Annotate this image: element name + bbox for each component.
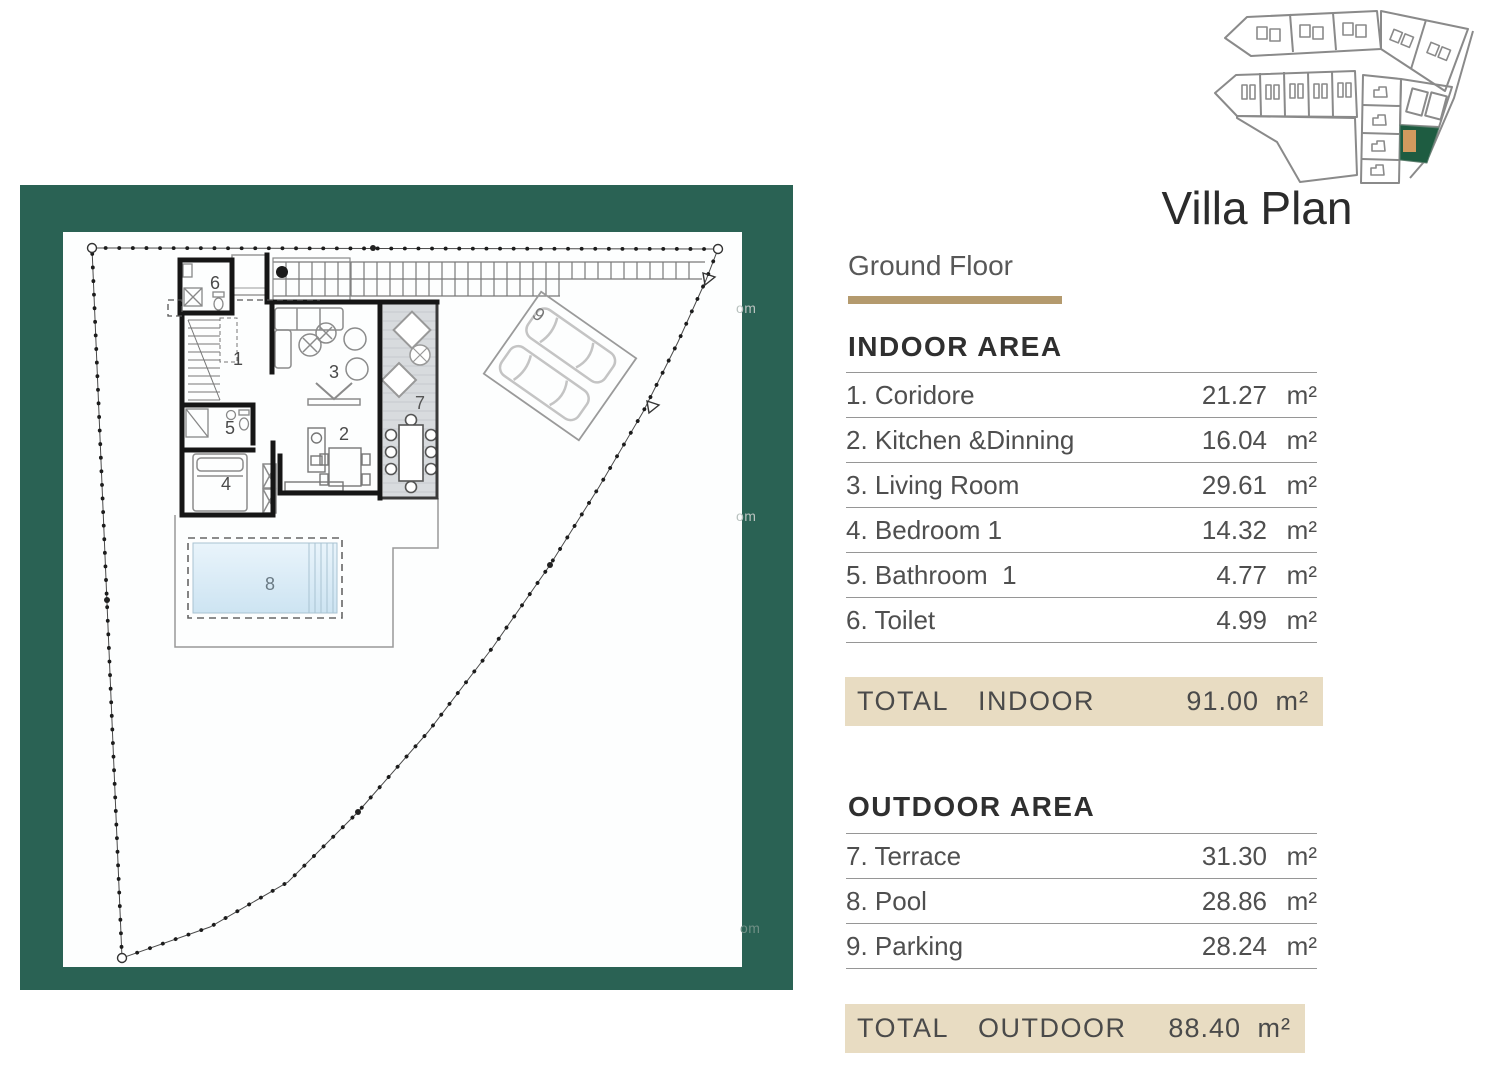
room-area: 29.61 — [1177, 470, 1267, 501]
room-name: 3. Living Room — [846, 470, 1177, 501]
area-unit: m² — [1267, 931, 1317, 962]
room-label-5: 5 — [225, 418, 235, 438]
indoor-table: 1. Coridore 21.27 m² 2. Kitchen &Dinning… — [846, 372, 1317, 643]
area-unit: m² — [1267, 470, 1317, 501]
room-label-3: 3 — [329, 362, 339, 382]
indoor-area-header: INDOOR AREA — [848, 331, 1063, 363]
room-area: 16.04 — [1177, 425, 1267, 456]
watermark-fragment: om — [736, 508, 756, 524]
room-name: 5. Bathroom 1 — [846, 560, 1177, 591]
area-unit: m² — [1267, 605, 1317, 636]
area-unit: m² — [1267, 886, 1317, 917]
table-row: 8. Pool 28.86 m² — [846, 878, 1317, 923]
terrace: 7 — [380, 302, 437, 498]
room-name: 8. Pool — [846, 886, 1177, 917]
bedroom-furniture — [193, 454, 276, 513]
total-indoor-value: 91.00 — [1169, 686, 1259, 717]
room-label-6: 6 — [210, 273, 220, 293]
table-row: 3. Living Room 29.61 m² — [846, 462, 1317, 507]
outdoor-table: 7. Terrace 31.30 m² 8. Pool 28.86 m² 9. … — [846, 833, 1317, 969]
car-icon — [496, 342, 593, 424]
total-indoor-label: TOTAL INDOOR — [857, 686, 1169, 717]
area-unit: m² — [1267, 841, 1317, 872]
floor-plan: 8 9 — [63, 232, 742, 967]
room-name: 1. Coridore — [846, 380, 1177, 411]
room-area: 31.30 — [1177, 841, 1267, 872]
area-unit: m² — [1241, 1013, 1291, 1044]
driveway-strip — [273, 262, 705, 296]
room-label-7: 7 — [415, 393, 425, 413]
room-label-8: 8 — [265, 574, 275, 594]
room-area: 4.99 — [1177, 605, 1267, 636]
watermark-fragment: om — [740, 920, 760, 936]
area-unit: m² — [1267, 425, 1317, 456]
room-name: 4. Bedroom 1 — [846, 515, 1177, 546]
floor-plan-canvas: 8 9 — [63, 232, 742, 967]
room-area: 28.24 — [1177, 931, 1267, 962]
table-row: 1. Coridore 21.27 m² — [846, 372, 1317, 417]
table-row: 2. Kitchen &Dinning 16.04 m² — [846, 417, 1317, 462]
area-unit: m² — [1267, 560, 1317, 591]
stairs — [188, 318, 237, 400]
parking: 9 — [484, 292, 636, 440]
area-unit: m² — [1267, 515, 1317, 546]
table-row: 5. Bathroom 1 4.77 m² — [846, 552, 1317, 597]
room-name: 2. Kitchen &Dinning — [846, 425, 1177, 456]
table-row: 7. Terrace 31.30 m² — [846, 833, 1317, 878]
page-title: Villa Plan — [1141, 181, 1373, 235]
pool: 8 — [188, 538, 342, 618]
floor-subtitle: Ground Floor — [848, 250, 1013, 282]
table-row: 6. Toilet 4.99 m² — [846, 597, 1317, 643]
kitchen-furniture — [285, 428, 370, 491]
entry-door-marker — [276, 266, 288, 278]
room-area: 14.32 — [1177, 515, 1267, 546]
area-unit: m² — [1267, 380, 1317, 411]
room-name: 9. Parking — [846, 931, 1177, 962]
total-outdoor-label: TOTAL OUTDOOR — [857, 1013, 1151, 1044]
room-name: 7. Terrace — [846, 841, 1177, 872]
site-plan — [1205, 5, 1495, 185]
table-row: 9. Parking 28.24 m² — [846, 923, 1317, 969]
room-name: 6. Toilet — [846, 605, 1177, 636]
porch — [232, 255, 267, 295]
outdoor-area-header: OUTDOOR AREA — [848, 791, 1095, 823]
subtitle-underline — [848, 296, 1062, 304]
total-outdoor-bar: TOTAL OUTDOOR 88.40 m² — [845, 1004, 1305, 1053]
room-area: 4.77 — [1177, 560, 1267, 591]
room-area: 28.86 — [1177, 886, 1267, 917]
room-label-2: 2 — [339, 424, 349, 444]
table-row: 4. Bedroom 1 14.32 m² — [846, 507, 1317, 552]
room-label-4: 4 — [221, 474, 231, 494]
bathroom-fixtures — [186, 409, 249, 437]
total-indoor-bar: TOTAL INDOOR 91.00 m² — [845, 677, 1323, 726]
room-label-1: 1 — [233, 349, 243, 369]
room-label-9: 9 — [529, 303, 549, 325]
total-outdoor-value: 88.40 — [1151, 1013, 1241, 1044]
highlighted-villa — [1403, 130, 1416, 152]
area-unit: m² — [1259, 686, 1309, 717]
living-furniture — [275, 308, 368, 405]
room-area: 21.27 — [1177, 380, 1267, 411]
watermark-fragment: om — [736, 300, 756, 316]
